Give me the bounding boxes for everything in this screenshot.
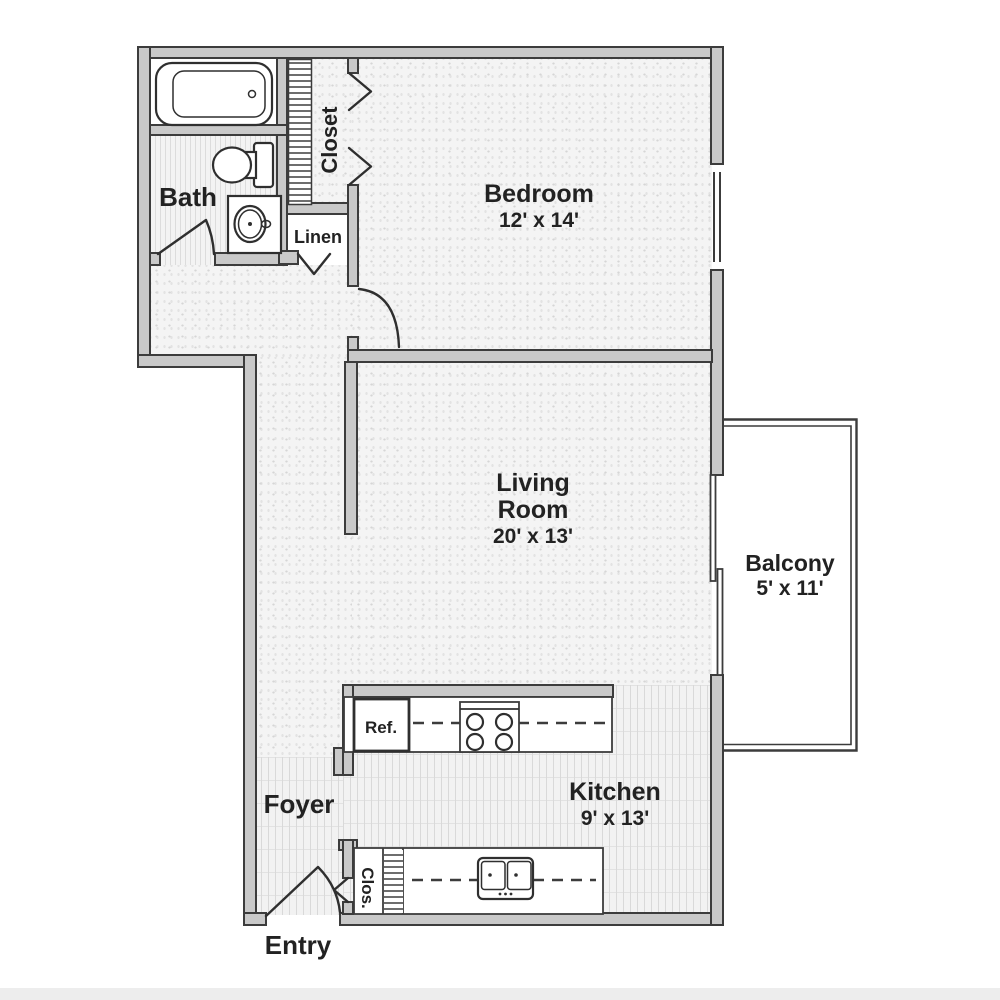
double-basin-sink-icon (478, 858, 533, 899)
foyer-label: Foyer (249, 791, 349, 817)
wall-bath-bottom (215, 253, 287, 265)
kitchen-counter-lower (354, 848, 603, 914)
wall-clos-left-a (343, 840, 353, 878)
entry-door-swing-icon (266, 867, 340, 916)
kitchen-label: Kitchen 9' x 13' (515, 780, 715, 829)
wall-top (138, 47, 723, 58)
kitchen-name: Kitchen (515, 780, 715, 805)
wall-counter-top (343, 685, 613, 697)
bedroom-door-swing-icon (359, 289, 399, 347)
living-room-dims: 20' x 13' (433, 526, 633, 547)
balcony-dims: 5' x 11' (714, 578, 866, 599)
bedroom-name: Bedroom (439, 182, 639, 207)
kitchen-dims: 9' x 13' (515, 808, 715, 829)
closet-shelves-icon (289, 60, 312, 205)
balcony-label: Balcony 5' x 11' (714, 552, 866, 599)
linen-door-chevron-icon (298, 254, 330, 274)
refrigerator-label: Ref. (353, 719, 409, 736)
closet-bifold-door-icon-1 (349, 73, 371, 110)
wall-bedroom-bottom (348, 350, 712, 362)
four-burner-range-icon (460, 702, 519, 752)
living-room-name-line2: Room (433, 498, 633, 523)
wall-right-1 (711, 47, 723, 164)
wall-left-lower (244, 355, 256, 925)
wall-closet-stub-top (348, 58, 358, 73)
entry-closet-label: Clos. (358, 852, 376, 924)
bedroom-label: Bedroom 12' x 14' (439, 182, 639, 231)
entry-label: Entry (248, 932, 348, 958)
entry-closet-shelves-icon (384, 850, 403, 913)
wall-counter-left-cap (334, 748, 343, 775)
bath-door-swing-icon (158, 220, 214, 254)
toilet-icon (213, 143, 273, 187)
wall-step (138, 355, 256, 367)
vanity-sink-icon (228, 196, 281, 253)
bathtub-icon (156, 63, 272, 125)
wall-bottom-jamb (244, 913, 266, 925)
bottom-band (0, 988, 1000, 1000)
linen-label: Linen (283, 228, 353, 246)
wall-tub (150, 125, 287, 135)
wall-right-2 (711, 270, 723, 475)
closet-bifold-door-icon-2 (349, 148, 371, 185)
closet-label: Closet (319, 80, 343, 200)
bath-label: Bath (148, 184, 228, 210)
bedroom-dims: 12' x 14' (439, 210, 639, 231)
balcony-name: Balcony (714, 552, 866, 575)
living-room-label: Living Room 20' x 13' (433, 471, 633, 547)
living-room-name-line1: Living (433, 471, 633, 496)
wall-clos-left-b (343, 902, 353, 914)
wall-living-divider (345, 362, 357, 534)
window-icon (714, 172, 720, 262)
floor-plan: Bath Closet Linen Bedroom 12' x 14' Livi… (0, 0, 1000, 1000)
